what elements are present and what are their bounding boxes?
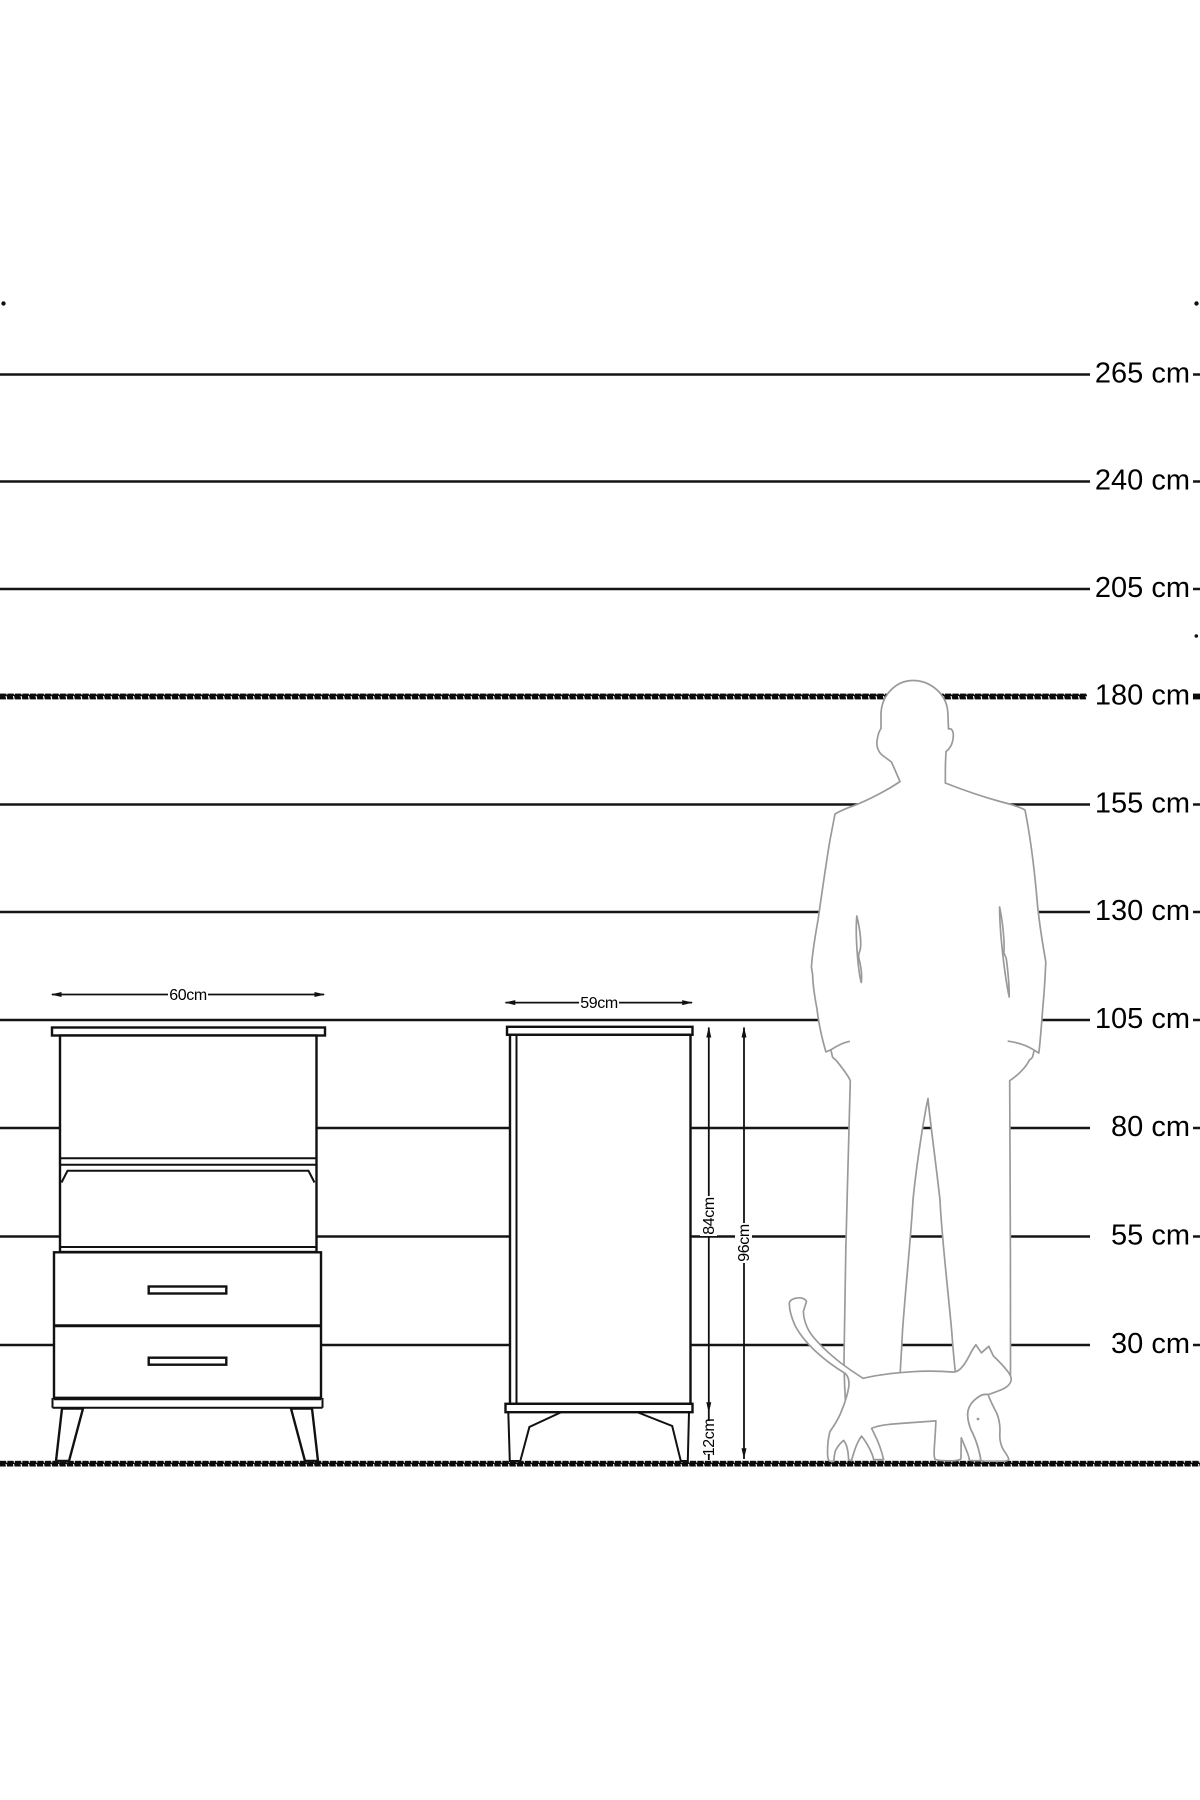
svg-text:155 cm: 155 cm: [1095, 788, 1190, 820]
svg-text:265 cm: 265 cm: [1095, 358, 1190, 390]
svg-text:60cm: 60cm: [169, 987, 207, 1004]
svg-text:55 cm: 55 cm: [1111, 1220, 1190, 1252]
svg-text:130 cm: 130 cm: [1095, 895, 1190, 927]
svg-text:240 cm: 240 cm: [1095, 465, 1190, 497]
svg-text:205 cm: 205 cm: [1095, 572, 1190, 604]
svg-text:105 cm: 105 cm: [1095, 1003, 1190, 1035]
svg-text:96cm: 96cm: [736, 1224, 753, 1262]
svg-text:180 cm: 180 cm: [1095, 680, 1190, 712]
svg-text:84cm: 84cm: [701, 1197, 718, 1235]
svg-text:80 cm: 80 cm: [1111, 1111, 1190, 1143]
svg-text:59cm: 59cm: [580, 995, 618, 1012]
svg-text:30 cm: 30 cm: [1111, 1328, 1190, 1360]
svg-text:12cm: 12cm: [701, 1419, 718, 1457]
